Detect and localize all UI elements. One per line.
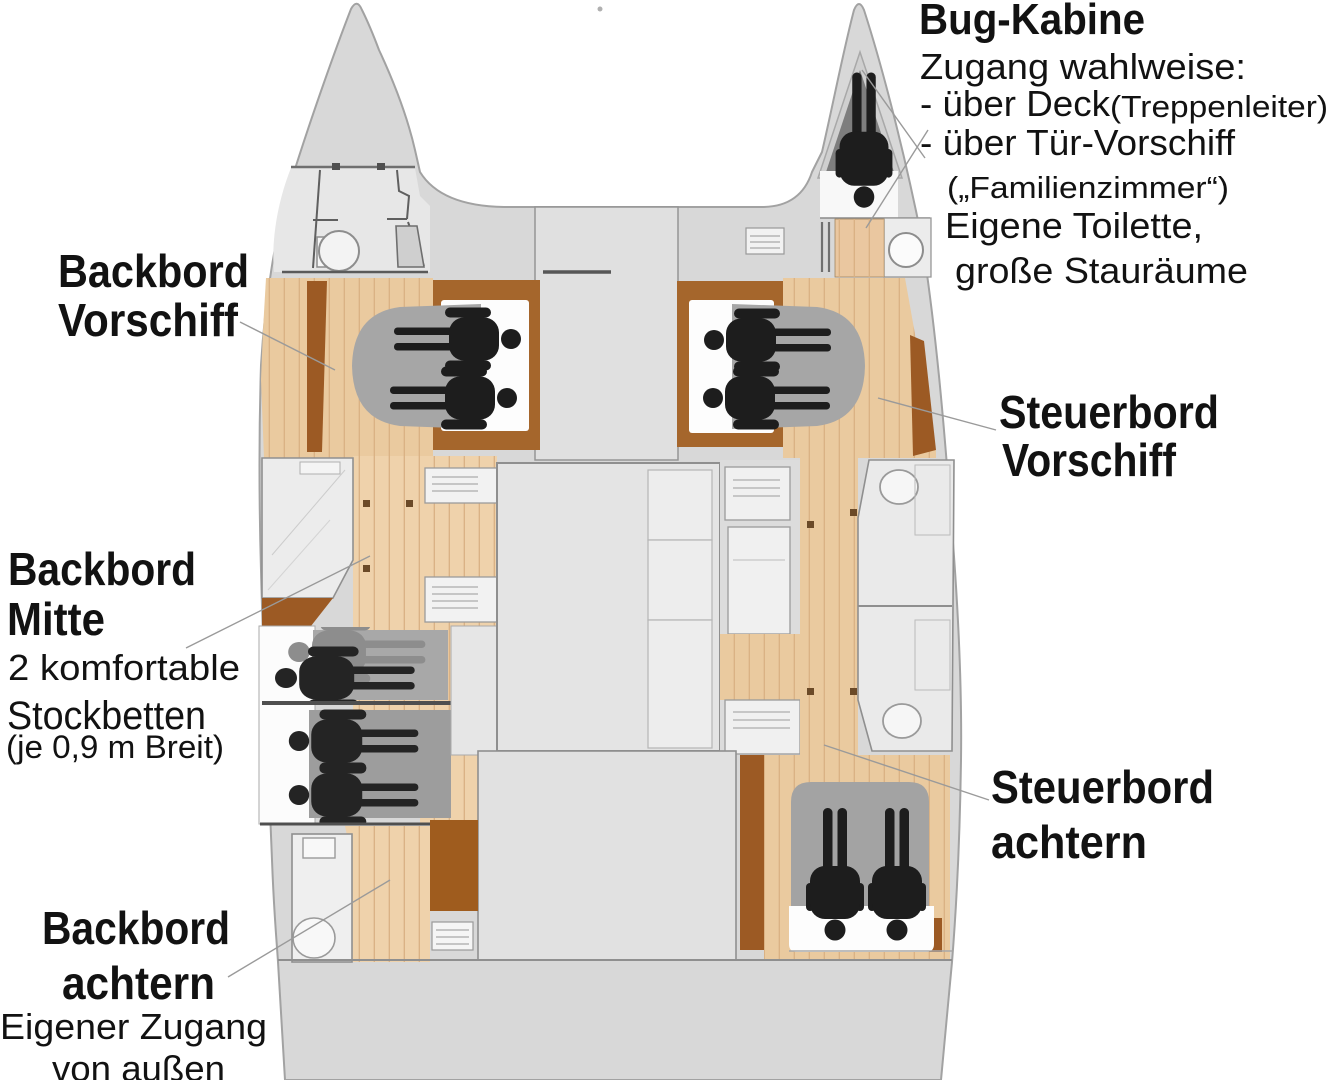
svg-text:Backbord: Backbord [58,245,249,297]
svg-text:Eigene Toilette,: Eigene Toilette, [945,205,1203,246]
svg-text:Zugang wahlweise:: Zugang wahlweise: [920,46,1246,87]
svg-text:Steuerbord: Steuerbord [991,761,1214,813]
svg-text:Bug-Kabine: Bug-Kabine [919,0,1145,44]
svg-text:große Stauräume: große Stauräume [955,250,1248,291]
svg-text:(Treppenleiter): (Treppenleiter) [1110,89,1328,124]
svg-text:- über Deck: - über Deck [920,83,1111,124]
svg-text:2 komfortable: 2 komfortable [8,647,240,688]
svg-text:von außen: von außen [52,1048,225,1080]
svg-text:Backbord: Backbord [42,902,230,954]
svg-text:Eigener Zugang: Eigener Zugang [0,1006,267,1047]
svg-text:(je 0,9 m Breit): (je 0,9 m Breit) [6,729,224,765]
svg-text:(„Familienzimmer“): („Familienzimmer“) [947,170,1229,205]
svg-text:Mitte: Mitte [7,593,105,645]
svg-text:- über Tür-Vorschiff: - über Tür-Vorschiff [920,122,1236,163]
svg-text:achtern: achtern [991,816,1147,868]
svg-text:Steuerbord: Steuerbord [999,386,1219,438]
svg-text:Vorschiff: Vorschiff [58,294,239,346]
svg-text:achtern: achtern [62,957,215,1009]
svg-text:Vorschiff: Vorschiff [1002,434,1177,486]
svg-text:Backbord: Backbord [8,543,196,595]
